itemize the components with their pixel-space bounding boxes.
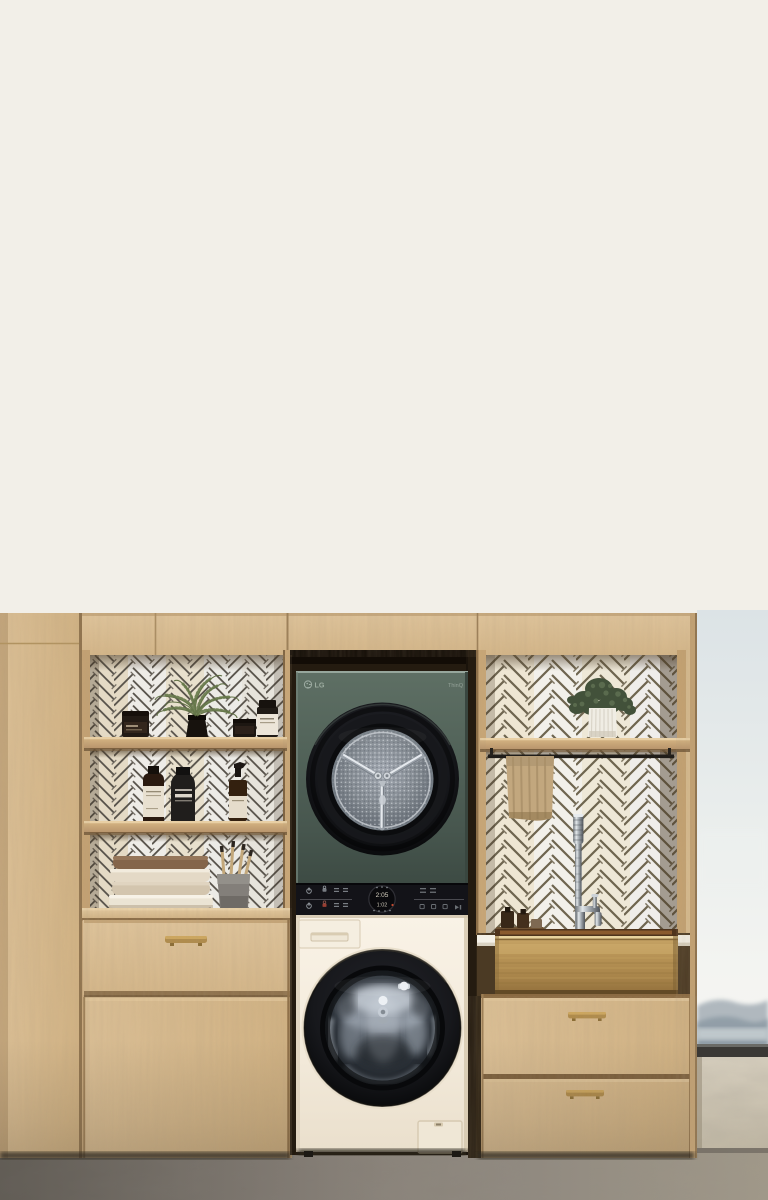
svg-text:1:02: 1:02 xyxy=(377,903,388,909)
svg-text:2:05: 2:05 xyxy=(376,892,389,899)
svg-text:ThinQ: ThinQ xyxy=(448,683,464,689)
svg-text:LG: LG xyxy=(315,681,325,690)
